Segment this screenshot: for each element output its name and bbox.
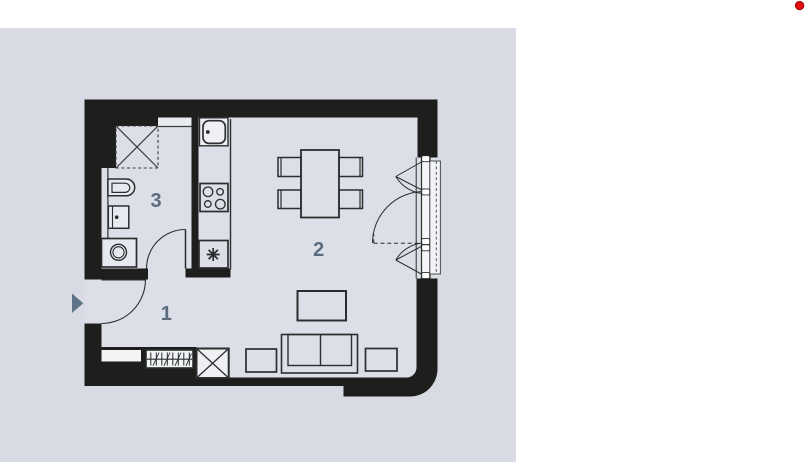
- svg-text:1: 1: [161, 303, 172, 325]
- svg-text:3: 3: [150, 190, 161, 212]
- svg-text:2: 2: [313, 239, 324, 261]
